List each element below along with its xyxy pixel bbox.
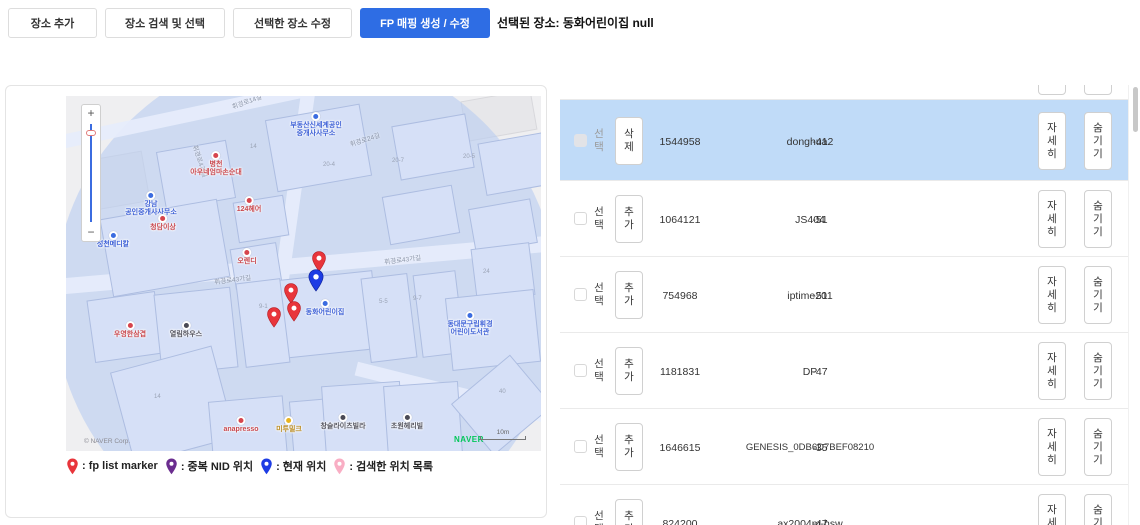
zoom-out-button[interactable]: − bbox=[81, 224, 101, 241]
search-place-button[interactable]: 장소 검색 및 선택 bbox=[105, 8, 225, 38]
toolbar: 장소 추가 장소 검색 및 선택 선택한 장소 수정 FP 매핑 생성 / 수정… bbox=[0, 0, 1140, 48]
panel-divider bbox=[1128, 85, 1129, 525]
detail-button[interactable]: 자세히 bbox=[1038, 190, 1066, 248]
nid-value: 1181831 bbox=[645, 366, 715, 378]
legend-item: : fp list marker bbox=[66, 458, 158, 475]
fp-mapping-app: 장소 추가 장소 검색 및 선택 선택한 장소 수정 FP 매핑 생성 / 수정… bbox=[0, 0, 1140, 525]
dup-nid-marker-icon bbox=[165, 458, 178, 475]
nid-value: 1544958 bbox=[645, 136, 715, 148]
lot-number: 20-4 bbox=[323, 162, 335, 168]
nid-value: 1646615 bbox=[645, 442, 715, 454]
delete-button[interactable]: 삭제 bbox=[615, 117, 643, 165]
add-place-button[interactable]: 장소 추가 bbox=[8, 8, 97, 38]
detail-button[interactable]: 자세히 bbox=[1038, 342, 1066, 400]
map-canvas bbox=[66, 96, 541, 451]
add-button[interactable]: 추가 bbox=[615, 423, 643, 471]
fp-list-marker[interactable] bbox=[286, 301, 302, 327]
detail-button[interactable]: 자세히 bbox=[1038, 266, 1066, 324]
current-location-marker-icon bbox=[260, 458, 273, 475]
map-scale: 10m bbox=[480, 429, 526, 440]
hide-button[interactable] bbox=[1084, 85, 1112, 95]
map[interactable]: 부동산신세계공인중개사사무소 병천아우네엄마손순대 강남공인중개사사무소 청담이… bbox=[66, 96, 541, 451]
fp-list-marker[interactable] bbox=[266, 307, 282, 333]
table-row: 선택 추가 824200 ax2004m-hsw -47 CARLINK-129… bbox=[560, 485, 1128, 525]
row-checkbox[interactable] bbox=[574, 440, 587, 453]
select-label: 선택 bbox=[591, 282, 607, 308]
row-checkbox[interactable] bbox=[574, 134, 587, 147]
map-card: 부동산신세계공인중개사사무소 병천아우네엄마손순대 강남공인중개사사무소 청담이… bbox=[5, 85, 547, 518]
legend-item: : 검색한 위치 목록 bbox=[333, 458, 433, 475]
rssi-value: -35 bbox=[795, 442, 845, 454]
current-location-marker[interactable] bbox=[307, 269, 325, 297]
table-row: 선택 삭제 1544958 donghua2 -41 donghua2 / -4… bbox=[560, 100, 1128, 181]
hide-button[interactable]: 숨기기 bbox=[1084, 190, 1112, 248]
table-row-partial bbox=[560, 85, 1128, 100]
select-label: 선택 bbox=[591, 434, 607, 460]
lot-number: 20-5 bbox=[463, 154, 475, 160]
scrollbar-thumb[interactable] bbox=[1133, 87, 1138, 132]
rssi-value: -51 bbox=[795, 214, 845, 226]
map-zoom-control: + − bbox=[81, 104, 101, 242]
select-label: 선택 bbox=[591, 358, 607, 384]
hide-button[interactable]: 숨기기 bbox=[1084, 342, 1112, 400]
lot-number: 14 bbox=[154, 394, 161, 400]
zoom-slider-track[interactable] bbox=[90, 124, 92, 222]
fp-list-marker-icon bbox=[66, 458, 79, 475]
selected-place-label: 선택된 장소: 동화어린이집 null bbox=[497, 14, 654, 31]
map-attribution: © NAVER Corp. bbox=[84, 438, 130, 445]
hide-button[interactable]: 숨기기 bbox=[1084, 494, 1112, 525]
legend-item: : 현재 위치 bbox=[260, 458, 326, 475]
detail-button[interactable]: 자세히 bbox=[1038, 418, 1066, 476]
row-checkbox[interactable] bbox=[574, 212, 587, 225]
add-button[interactable]: 추가 bbox=[615, 347, 643, 395]
rssi-value: -51 bbox=[795, 290, 845, 302]
fp-mapping-button[interactable]: FP 매핑 생성 / 수정 bbox=[360, 8, 490, 38]
add-button[interactable]: 추가 bbox=[615, 499, 643, 525]
select-label: 선택 bbox=[591, 510, 607, 525]
map-legend: : fp list marker : 중복 NID 위치 : 현재 위치 : 검… bbox=[66, 454, 433, 478]
row-checkbox[interactable] bbox=[574, 288, 587, 301]
detail-button[interactable]: 자세히 bbox=[1038, 494, 1066, 525]
table-row: 선택 추가 1064121 JS404 -51 JS404 / -51 / 24… bbox=[560, 181, 1128, 257]
row-checkbox[interactable] bbox=[574, 364, 587, 377]
detail-button[interactable]: 자세히 bbox=[1038, 112, 1066, 170]
add-button[interactable]: 추가 bbox=[615, 195, 643, 243]
detail-button[interactable] bbox=[1038, 85, 1066, 95]
lot-number: 40 bbox=[499, 389, 506, 395]
lot-number: 5-5 bbox=[379, 299, 388, 305]
rssi-value: -47 bbox=[795, 366, 845, 378]
nid-value: 754968 bbox=[645, 290, 715, 302]
hide-button[interactable]: 숨기기 bbox=[1084, 418, 1112, 476]
searched-location-marker-icon bbox=[333, 458, 346, 475]
edit-place-button[interactable]: 선택한 장소 수정 bbox=[233, 8, 352, 38]
table-row: 선택 추가 754968 iptime201 -51 ax2004m-hsw /… bbox=[560, 257, 1128, 333]
select-label: 선택 bbox=[591, 128, 607, 154]
nid-value: 1064121 bbox=[645, 214, 715, 226]
lot-number: 24 bbox=[483, 269, 490, 275]
lot-number: 14 bbox=[250, 144, 257, 150]
rssi-value: -41 bbox=[795, 136, 845, 148]
ap-list-panel: 선택 삭제 1544958 donghua2 -41 donghua2 / -4… bbox=[560, 85, 1128, 525]
scale-bar bbox=[480, 436, 526, 440]
hide-button[interactable]: 숨기기 bbox=[1084, 112, 1112, 170]
lot-number: 9-7 bbox=[413, 296, 422, 302]
table-row: 선택 추가 1181831 DP -47 TP-LINK_64F6 / -47 … bbox=[560, 333, 1128, 409]
add-button[interactable]: 추가 bbox=[615, 271, 643, 319]
table-row: 선택 추가 1646615 GENESIS_0DB6D7BEF08210 -35… bbox=[560, 409, 1128, 485]
rssi-value: -47 bbox=[795, 518, 845, 525]
hide-button[interactable]: 숨기기 bbox=[1084, 266, 1112, 324]
zoom-in-button[interactable]: + bbox=[81, 105, 101, 122]
row-checkbox[interactable] bbox=[574, 516, 587, 525]
legend-item: : 중복 NID 위치 bbox=[165, 458, 253, 475]
nid-value: 824200 bbox=[645, 518, 715, 525]
zoom-slider-handle[interactable] bbox=[86, 130, 96, 136]
lot-number: 20-7 bbox=[392, 158, 404, 164]
select-label: 선택 bbox=[591, 206, 607, 232]
